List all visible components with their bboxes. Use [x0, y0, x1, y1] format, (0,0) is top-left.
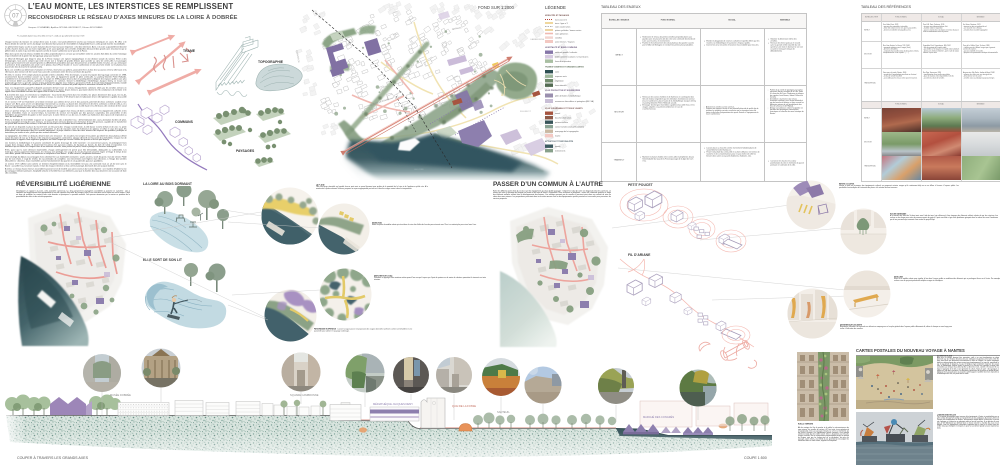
svg-text:jamais: jamais [554, 146, 561, 148]
svg-text:TOPOGRAPHIE: TOPOGRAPHIE [258, 60, 284, 64]
svg-text:marée: marée [555, 135, 560, 138]
svg-text:présence d'eau: présence d'eau [555, 121, 568, 124]
svg-text:GRASLIN: GRASLIN [452, 26, 462, 31]
svg-text:voies piétonnes: voies piétonnes [555, 32, 568, 35]
svg-text:Loire: Loire [555, 71, 559, 74]
svg-text:ressources diversifiées et par: ressources diversifiées et partagées (AS… [555, 100, 594, 103]
svg-text:établissements scolaires / uni: établissements scolaires / universitaire… [555, 56, 588, 59]
svg-text:LÉGENDE: LÉGENDE [545, 5, 566, 10]
svg-text:végétation: végétation [555, 80, 564, 83]
svg-text:espaces verts: espaces verts [555, 75, 567, 78]
svg-text:zones humides (non artificiali: zones humides (non artificialisées) [555, 126, 584, 129]
svg-text:tram - ligne n°1: tram - ligne n°1 [555, 22, 568, 25]
svg-text:TRAMES VIVANTES ET GRANDES LIM: TRAMES VIVANTES ET GRANDES LIMITES [545, 66, 584, 69]
svg-text:voies souterraines: voies souterraines [555, 25, 570, 28]
svg-text:bouches d'aération: bouches d'aération [555, 117, 571, 120]
svg-text:SANTEUIL: SANTEUIL [497, 410, 510, 414]
svg-text:services sportifs / culturels: services sportifs / culturels [555, 51, 577, 54]
svg-text:PAYSAGES: PAYSAGES [236, 149, 255, 153]
svg-text:COMMUNS: COMMUNS [175, 120, 194, 124]
svg-text:LA LOIRE: LA LOIRE [414, 168, 424, 171]
svg-text:lieux de respiration: lieux de respiration [555, 60, 571, 63]
svg-text:tunnel: tunnel [555, 112, 561, 115]
svg-text:marquage de la topographie: marquage de la topographie [555, 130, 579, 133]
svg-text:pistes cyclables / trames vert: pistes cyclables / trames vertes [555, 29, 581, 32]
svg-text:axes mineurs / majeurs: axes mineurs / majeurs [555, 40, 575, 43]
svg-text:VILLE VULNÉRABLE ET TISSUS VIV: VILLE VULNÉRABLE ET TISSUS VIVANTS [545, 107, 583, 110]
svg-text:évènements: évènements [555, 150, 565, 153]
svg-text:COUPER À TRAVERS LES GRANDS AX: COUPER À TRAVERS LES GRANDS AXES [17, 456, 89, 460]
svg-text:pôles d'études et médiathèque: pôles d'études et médiathèque [555, 94, 581, 97]
svg-text:VILLE PRODUCTIVE ET NOURRICIÈR: VILLE PRODUCTIVE ET NOURRICIÈRE [545, 89, 581, 92]
svg-text:TRAME: TRAME [183, 49, 196, 53]
svg-text:HOSPITALITÉ ET BIENS COMMUNS: HOSPITALITÉ ET BIENS COMMUNS [545, 46, 578, 49]
svg-text:FOND SUR 1:2000: FOND SUR 1:2000 [478, 5, 515, 10]
svg-text:ATTENTES ET TEMPORALITÉS: ATTENTES ET TEMPORALITÉS [545, 140, 574, 143]
svg-text:lieux attractifs: lieux attractifs [555, 84, 567, 87]
svg-text:07: 07 [12, 14, 19, 20]
svg-text:COUPE 1:500: COUPE 1:500 [744, 456, 767, 460]
svg-text:tram ancien lit: tram ancien lit [555, 18, 567, 21]
svg-text:MOBILITÉS ET PASSAGES: MOBILITÉS ET PASSAGES [545, 14, 570, 17]
svg-text:venelles: venelles [555, 37, 562, 39]
svg-text:FLEURIOT: FLEURIOT [520, 111, 531, 113]
